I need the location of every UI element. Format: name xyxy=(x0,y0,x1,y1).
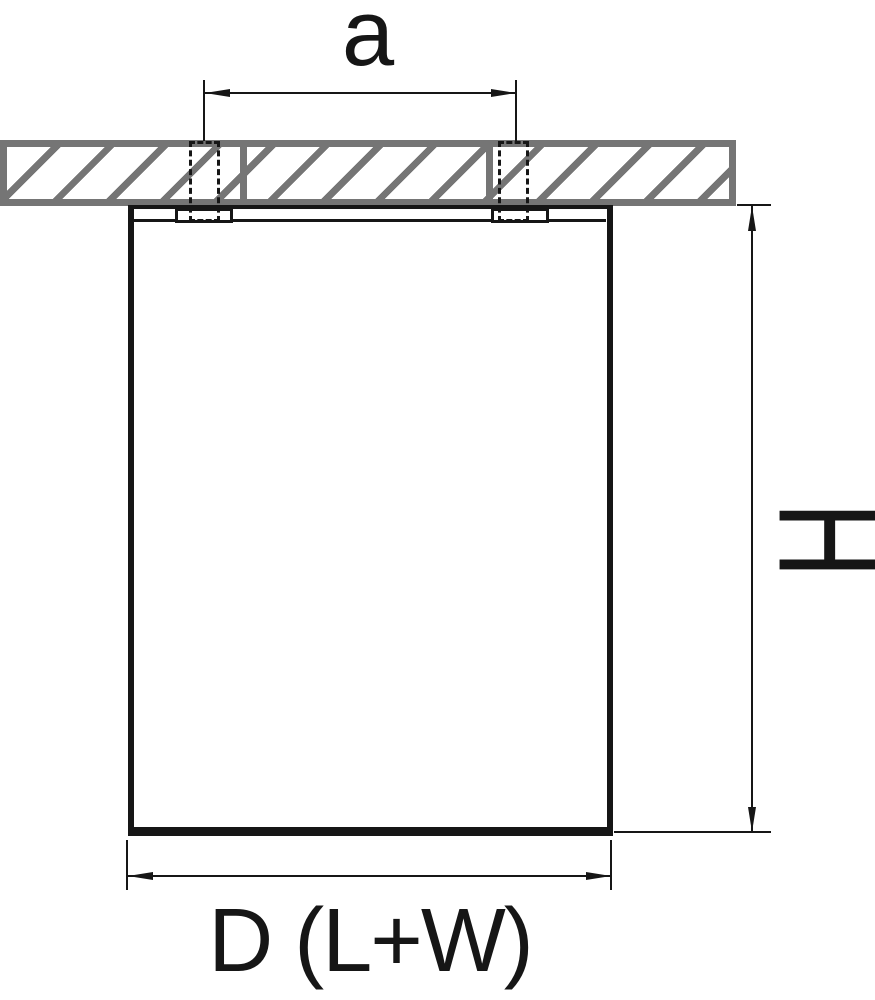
dim-a-line xyxy=(205,92,516,94)
dim-h-arrow-up xyxy=(748,206,756,231)
dim-d-arrow-left xyxy=(128,872,153,880)
ceiling-segment-divider-left xyxy=(240,140,247,206)
screw-hole-right-dashed xyxy=(498,141,529,222)
dim-a-arrow-right xyxy=(491,89,516,97)
dimension-diagram: a H D (L+W) xyxy=(0,0,875,1000)
dim-d-label: D (L+W) xyxy=(120,896,620,986)
fixture-body xyxy=(128,205,613,836)
dim-h-arrow-down xyxy=(748,807,756,832)
dim-h-label: H xyxy=(758,502,875,578)
dim-d-extension-right xyxy=(610,840,612,890)
dim-a-label: a xyxy=(308,0,428,80)
dim-d-line xyxy=(128,875,611,877)
screw-hole-left-dashed xyxy=(189,141,220,222)
ceiling-hatched-bar xyxy=(0,140,736,206)
dim-a-arrow-left xyxy=(205,89,230,97)
dim-d-extension-left xyxy=(126,840,128,890)
dim-d-arrow-right xyxy=(586,872,611,880)
ceiling-segment-divider-right xyxy=(486,140,493,206)
dim-h-label-container: H xyxy=(728,440,875,640)
